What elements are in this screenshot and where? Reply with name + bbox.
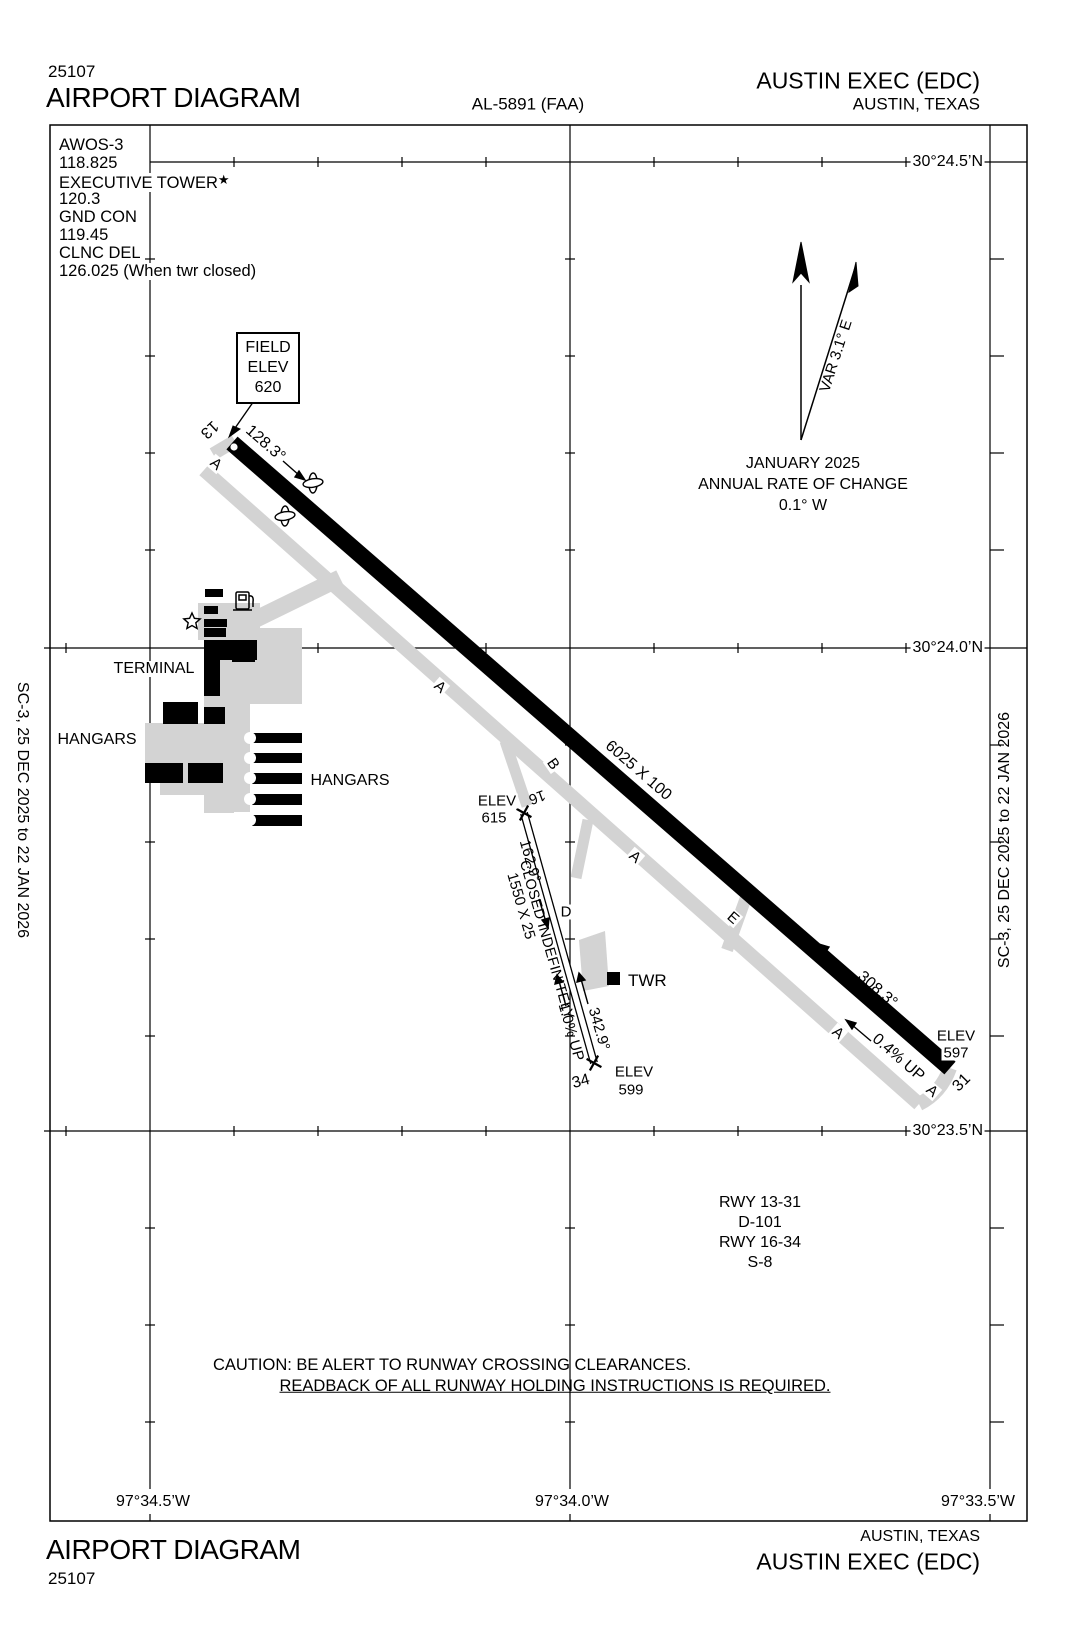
footer-airport-name: AUSTIN EXEC (EDC)	[756, 1551, 980, 1574]
comms-clnc-label: CLNC DEL	[57, 245, 143, 262]
comms-tower-label: EXECUTIVE TOWER★	[57, 173, 232, 192]
arrow-128	[283, 461, 305, 480]
latitude-label-3: 30°23.5’N	[911, 1123, 985, 1139]
true-north-arrowhead	[793, 242, 809, 282]
caution-line-1: CAUTION: BE ALERT TO RUNWAY CROSSING CLE…	[213, 1357, 691, 1374]
taxiway-apron-pavement	[145, 441, 950, 1104]
magnetic-north-half-arrowhead	[849, 262, 858, 292]
apron-taxiway-connector	[250, 578, 340, 622]
hangars-east-label: HANGARS	[308, 773, 391, 789]
variation-date: JANUARY 2025	[746, 456, 860, 472]
edge-effective-dates-right: SC-3, 25 DEC 2025 to 22 JAN 2026	[996, 712, 1014, 968]
airport-city: AUSTIN, TEXAS	[853, 96, 980, 113]
taxiway-d-label: D	[559, 905, 574, 920]
hangars-west-label: HANGARS	[55, 732, 138, 748]
apron-south-tail	[204, 793, 250, 811]
hangar-southwest-1	[145, 763, 183, 783]
longitude-label-2: 97°34.0’W	[533, 1494, 611, 1510]
field-elev-box: FIELD ELEV 620	[236, 332, 300, 404]
taxiway-d-connector	[576, 820, 588, 878]
chart-graphics	[0, 0, 1076, 1650]
footer-chart-number: 25107	[48, 1570, 95, 1587]
footer-title: AIRPORT DIAGRAM	[46, 1536, 300, 1564]
tower-building	[579, 931, 609, 991]
field-elev-word1: FIELD	[240, 338, 296, 358]
variation-rate: 0.1° W	[779, 498, 827, 514]
rwy-13-31-note: RWY 13-31	[719, 1195, 801, 1211]
variation-rate-label: ANNUAL RATE OF CHANGE	[698, 477, 908, 493]
comms-gnd-freq: 119.45	[57, 227, 110, 244]
comms-gnd-label: GND CON	[57, 209, 139, 226]
hangar-west-2	[204, 707, 225, 724]
runway-16-elev-value: 615	[479, 811, 508, 826]
beacon-star-icon	[184, 613, 200, 629]
airport-name: AUSTIN EXEC (EDC)	[756, 70, 980, 93]
apron-main-upper	[230, 628, 302, 704]
tower-label: TWR	[628, 972, 667, 989]
edge-effective-dates-left: SC-3, 25 DEC 2025 to 22 JAN 2026	[13, 682, 31, 938]
rwy-13-31-strength: D-101	[738, 1215, 782, 1231]
longitude-label-3: 97°33.5’W	[939, 1494, 1017, 1510]
chart-number: 25107	[48, 63, 95, 80]
rwy-16-34-note: RWY 16-34	[719, 1235, 801, 1251]
comms-awos-freq: 118.825	[57, 155, 119, 172]
page-title: AIRPORT DIAGRAM	[46, 84, 300, 112]
runway-31-elev-value: 597	[941, 1046, 970, 1061]
footer-city: AUSTIN, TEXAS	[860, 1529, 980, 1545]
airport-diagram-page: { "colors": {"ink":"#000000","pavement":…	[0, 0, 1076, 1650]
field-elev-value: 620	[240, 378, 296, 398]
comms-awos-label: AWOS-3	[57, 137, 125, 154]
comms-clnc-freq: 126.025 (When twr closed)	[57, 263, 258, 280]
longitude-label-1: 97°34.5’W	[114, 1494, 192, 1510]
runway-34-elev-value: 599	[616, 1083, 645, 1098]
latitude-label-1: 30°24.5’N	[911, 154, 985, 170]
comms-tower-freq: 120.3	[57, 191, 102, 208]
runway-34-elev-label: ELEV	[613, 1065, 655, 1080]
runway-16-elev-label: ELEV	[476, 794, 518, 809]
tower-star-icon: ★	[218, 172, 230, 187]
runway-31-elev-label: ELEV	[935, 1029, 977, 1044]
caution-line-2: READBACK OF ALL RUNWAY HOLDING INSTRUCTI…	[279, 1378, 830, 1395]
terminal-label: TERMINAL	[112, 661, 197, 677]
hangar-west-1	[163, 702, 198, 724]
lat-lon-grid	[44, 125, 1027, 1521]
runway-13-threshold-dot	[230, 443, 237, 450]
procedure-id: AL-5891 (FAA)	[472, 96, 584, 113]
hangar-row-east	[252, 733, 302, 826]
chart-frame	[50, 125, 1027, 1521]
hangar-southwest-2	[188, 763, 223, 783]
rwy-16-34-strength: S-8	[748, 1255, 773, 1271]
tower-symbol	[607, 972, 620, 985]
latitude-label-2: 30°24.0’N	[911, 640, 985, 656]
field-elev-word2: ELEV	[240, 358, 296, 378]
